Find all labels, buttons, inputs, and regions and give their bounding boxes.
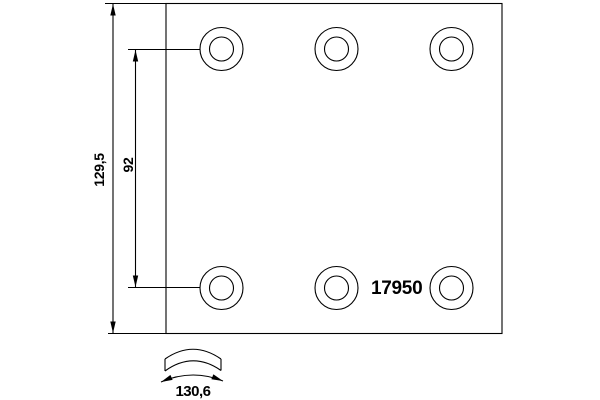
rivet-hole-top-left <box>200 28 243 71</box>
rivet-hole-inner-circle <box>325 37 349 61</box>
dimension-hole-spacing <box>128 50 200 288</box>
rivet-hole-bottom-left <box>200 267 243 310</box>
rivet-hole-inner-circle <box>440 276 464 300</box>
rivet-hole-inner-circle <box>210 276 234 300</box>
rivet-hole-bottom-middle <box>315 267 358 310</box>
dimension-label-total-height: 129,5 <box>91 153 107 187</box>
plate-group <box>166 4 502 334</box>
rivet-hole-outer-circle <box>315 267 358 310</box>
rivet-hole-inner-circle <box>325 276 349 300</box>
rivet-hole-outer-circle <box>200 28 243 71</box>
rivet-hole-outer-circle <box>430 28 473 71</box>
dimension-label-arc-width: 130,6 <box>175 383 210 400</box>
rivet-hole-outer-circle <box>315 28 358 71</box>
brake-lining-drawing: 129,5 92 17950 130,6 <box>0 0 600 400</box>
drawing-canvas: 129,5 92 17950 130,6 <box>0 0 600 400</box>
arc-profile-bottom-edge <box>165 361 221 371</box>
dimension-arc-width <box>161 375 223 382</box>
dimension-label-hole-spacing: 92 <box>120 157 136 172</box>
rivet-hole-inner-circle <box>210 37 234 61</box>
arc-profile-top-edge <box>165 349 221 359</box>
rivet-hole-inner-circle <box>440 37 464 61</box>
plate-outline <box>166 4 502 334</box>
rivet-hole-top-right <box>430 28 473 71</box>
rivet-hole-bottom-right <box>430 267 473 310</box>
rivet-hole-top-middle <box>315 28 358 71</box>
rivet-hole-outer-circle <box>430 267 473 310</box>
lining-arc-profile <box>161 349 223 382</box>
part-number-label: 17950 <box>371 278 422 299</box>
rivet-hole-outer-circle <box>200 267 243 310</box>
